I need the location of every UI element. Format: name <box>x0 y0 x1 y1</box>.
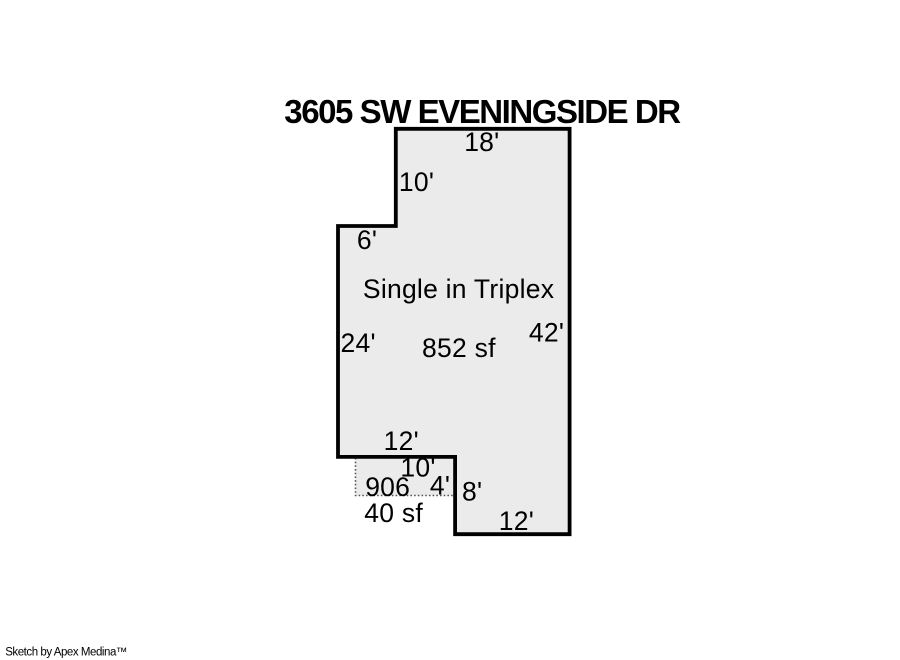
svg-text:Sketch by Apex Medina™: Sketch by Apex Medina™ <box>5 647 127 659</box>
svg-text:852 sf: 852 sf <box>422 333 496 363</box>
svg-text:18': 18' <box>464 127 499 157</box>
svg-text:24': 24' <box>341 328 376 358</box>
svg-text:4': 4' <box>430 471 450 501</box>
svg-text:3605 SW EVENINGSIDE DR: 3605 SW EVENINGSIDE DR <box>284 93 681 130</box>
svg-text:6': 6' <box>357 225 377 255</box>
svg-text:12': 12' <box>384 426 419 456</box>
svg-text:10': 10' <box>399 167 434 197</box>
svg-text:40 sf: 40 sf <box>364 498 423 528</box>
svg-text:12': 12' <box>499 506 534 536</box>
svg-text:Single in Triplex: Single in Triplex <box>363 274 554 304</box>
svg-text:8': 8' <box>462 477 482 507</box>
svg-text:42': 42' <box>529 317 564 347</box>
